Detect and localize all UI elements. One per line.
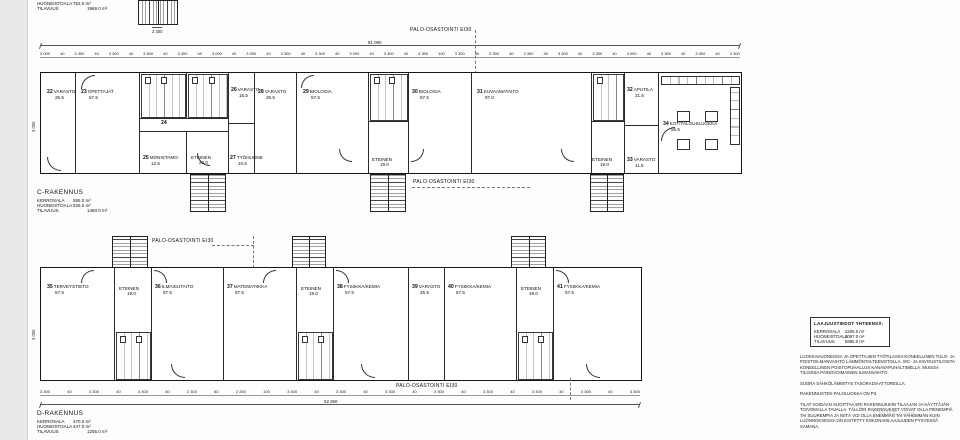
dimension-value: 40 xyxy=(163,51,167,56)
stat-row: TILAVUUS 1255.0 m³ xyxy=(37,429,107,434)
room-label-eteinen-3: ETEINEN 19.0 xyxy=(592,157,612,168)
dimension-value: 3 300 xyxy=(661,51,671,56)
wall xyxy=(186,131,187,173)
room-label-33: 33VARASTO 11.5 xyxy=(627,157,655,169)
wall xyxy=(553,268,554,380)
dimension-value: 3 300 xyxy=(455,51,465,56)
room-label-28: 28VARASTO 25.5 xyxy=(258,89,286,101)
dimension-value: 40 xyxy=(509,51,513,56)
dimension-value: 40 xyxy=(94,51,98,56)
wall xyxy=(223,268,224,380)
room-label-39: 39VARASTO 25.5 xyxy=(412,284,440,296)
wc-fixture xyxy=(374,77,380,84)
dimension-value: 100 xyxy=(263,389,270,394)
dimension-value: 40 xyxy=(67,389,71,394)
dimension-value: 3 300 xyxy=(489,51,499,56)
stat-label: TILAVUUS xyxy=(37,429,73,434)
stat-value: 1969.0 m³ xyxy=(87,6,107,11)
dimension-value: 40 xyxy=(404,51,408,56)
dimension-value: 3 300 xyxy=(532,389,542,394)
dimension-value: 40 xyxy=(681,51,685,56)
page-edge-strip xyxy=(0,0,28,440)
summary-title: LAAJUUSTIEDOT YHTEENSÄ: xyxy=(814,321,886,326)
door-arc xyxy=(47,157,61,171)
wc-fixture xyxy=(522,336,528,343)
room-label-30: 30BIOLOGIA 57.5 xyxy=(412,89,441,101)
building-c-stats: C-RAKENNUS KERROSALA 555.0 m² HUONEISTOA… xyxy=(37,190,107,213)
room-label-32: 32APUTILA 21.5 xyxy=(627,87,653,99)
dimension-value: 40 xyxy=(475,51,479,56)
total-dimension-c: 81 090 xyxy=(366,40,383,45)
door-arc xyxy=(81,75,95,89)
dimension-value: 3 300 xyxy=(281,51,291,56)
fire-compartment-label-c-top: PALO-OSASTOINTI EI30 xyxy=(410,27,472,33)
wc-fixture xyxy=(136,336,142,343)
fire-dashed-line-c-mid xyxy=(412,187,530,188)
dimension-value: 40 xyxy=(612,51,616,56)
door-arc xyxy=(81,270,94,283)
door-arc xyxy=(411,149,424,162)
total-dimension-d: 52 260 xyxy=(322,399,339,404)
kitchen-counter xyxy=(661,76,740,85)
summary-value: 5885.0 m³ xyxy=(845,339,864,344)
dimension-value: 40 xyxy=(116,389,120,394)
dimension-value: 3 300 xyxy=(418,51,428,56)
door-arc xyxy=(301,75,314,88)
dimension-value: 3 300 xyxy=(138,389,148,394)
dimension-value: 3 000 xyxy=(40,51,50,56)
stair-d-1 xyxy=(112,236,148,269)
totals-summary-box: LAAJUUSTIEDOT YHTEENSÄ: KERROSALA 2205.0… xyxy=(810,317,890,347)
stat-value: 1255.0 m³ xyxy=(87,429,107,434)
wall xyxy=(114,268,115,380)
building-c-title: C-RAKENNUS xyxy=(37,190,107,195)
room-label-eteinen-d2: ETEINEN 19.0 xyxy=(301,286,321,297)
wall xyxy=(151,268,152,380)
wc-fixture xyxy=(302,336,308,343)
room-label-31: 31KUVAAMATAITO 97.0 xyxy=(477,89,519,101)
dimension-value: 40 xyxy=(412,389,416,394)
fire-wall-dashed-line-d xyxy=(253,236,254,268)
floor-plan-sheet: HUONEISTOALA 752.0 m² TILAVUUS 1969.0 m³… xyxy=(0,0,960,440)
dimension-row-c: 3 000403 300403 300403 500403 300403 000… xyxy=(40,51,740,58)
dimension-value: 40 xyxy=(301,51,305,56)
fire-dashed-line-d-top xyxy=(212,245,254,246)
stat-label: TILAVUUS xyxy=(37,208,73,213)
dimension-value: 40 xyxy=(165,389,169,394)
wall xyxy=(368,121,408,122)
wc-fixture xyxy=(597,77,603,84)
dimension-value: 40 xyxy=(266,51,270,56)
door-arc xyxy=(556,270,569,283)
dimension-value: 3 300 xyxy=(40,389,50,394)
wall xyxy=(139,131,228,132)
room-label-40: 40FYSIIKKA/KEMIA 57.5 xyxy=(448,284,491,296)
room-label-35: 35TERVEYSTIETO 57.5 xyxy=(47,284,89,296)
dimension-value: 3 300 xyxy=(109,51,119,56)
table xyxy=(705,139,718,150)
side-dimension-d: 3 000 xyxy=(31,330,36,340)
stair-d-3 xyxy=(511,236,546,269)
dimension-value: 40 xyxy=(510,389,514,394)
building-d-plan: 35TERVEYSTIETO 57.5 ETEINEN 19.0 36ILMAI… xyxy=(40,267,642,381)
wc-fixture xyxy=(318,336,324,343)
wc-fixture xyxy=(192,77,198,84)
wall xyxy=(444,268,445,380)
dimension-value: 3 000 xyxy=(349,51,359,56)
fire-compartment-label-c-mid: PALO-OSASTOINTI EI30 xyxy=(413,179,475,185)
notes-text: LUOKKAHUONEISSA JA OPETTAJIEN TYÖTILASSA… xyxy=(800,354,956,434)
wall xyxy=(139,118,228,119)
room-label-eteinen-d3: ETEINEN 19.0 xyxy=(521,286,541,297)
dimension-value: 40 xyxy=(559,389,563,394)
building-d-title: D-RAKENNUS xyxy=(37,411,107,416)
dimension-value: 3 300 xyxy=(178,51,188,56)
wc-fixture xyxy=(161,77,167,84)
door-arc xyxy=(339,149,352,162)
dimension-value: 3 300 xyxy=(630,389,640,394)
total-dimension-line-c xyxy=(40,45,740,46)
dimension-value: 3 300 xyxy=(315,51,325,56)
dimension-row-d: 3 300403 300403 300402 300802 2501003 30… xyxy=(40,389,640,396)
room-label-24: 24 xyxy=(161,120,168,126)
door-arc xyxy=(586,364,600,378)
dimension-value: 40 xyxy=(129,51,133,56)
dimension-value: 2 250 xyxy=(236,389,246,394)
room-label-25: 25MONISTAMO 12.5 xyxy=(143,155,178,167)
wall xyxy=(591,121,624,122)
dimension-value: 40 xyxy=(314,389,318,394)
stair-d-2 xyxy=(292,236,326,269)
dimension-value: 3 300 xyxy=(384,51,394,56)
wall xyxy=(333,268,334,380)
dimension-value: 40 xyxy=(715,51,719,56)
room-label-eteinen-2: ETEINEN 19.0 xyxy=(372,157,392,168)
dimension-value: 40 xyxy=(60,51,64,56)
building-c-plan: 22VARASTO 25.5 23OPETTAJAT 57.5 24 25MON… xyxy=(40,72,742,174)
fire-compartment-label-d-top: PALO-OSASTOINTI EI30 xyxy=(152,238,214,244)
building-b-stats-partial: HUONEISTOALA 752.0 m² TILAVUUS 1969.0 m³ xyxy=(37,1,107,11)
building-d-stats: D-RAKENNUS KERROSALA 470.0 m² HUONEISTOA… xyxy=(37,411,107,434)
table xyxy=(677,139,690,150)
wall xyxy=(296,268,297,380)
wc-fixture xyxy=(120,336,126,343)
door-arc xyxy=(154,270,167,283)
wc-fixture xyxy=(145,77,151,84)
dimension-value: 40 xyxy=(647,51,651,56)
dimension-value: 3 300 xyxy=(581,389,591,394)
stair-c-2 xyxy=(370,174,406,212)
room-label-34: 34KOTITALOUSLUOKKA 55.5 xyxy=(663,121,717,133)
kitchen-counter xyxy=(730,87,740,145)
summary-row: TILAVUUS 5885.0 m³ xyxy=(814,339,886,344)
dimension-value: 40 xyxy=(335,51,339,56)
dimension-value: 40 xyxy=(232,51,236,56)
room-label-22: 22VARASTO 25.5 xyxy=(47,89,75,101)
note-paragraph: RAKENNUSTEN PALOLUOKKA ON P3. xyxy=(800,391,956,396)
stat-row: TILAVUUS 1480.0 m³ xyxy=(37,208,107,213)
dimension-value: 3 300 xyxy=(74,51,84,56)
dimension-value: 3 300 xyxy=(695,51,705,56)
dimension-value: 3 300 xyxy=(558,51,568,56)
dimension-value: 3 300 xyxy=(483,389,493,394)
dimension-value: 80 xyxy=(214,389,218,394)
dimension-value: 3 300 xyxy=(434,389,444,394)
dimension-value: 100 xyxy=(438,51,445,56)
door-arc xyxy=(361,364,375,378)
room-label-27: 27TYÖHUONE 10.5 xyxy=(230,155,263,167)
door-arc xyxy=(336,270,349,283)
wall xyxy=(139,73,140,173)
wall xyxy=(75,73,76,173)
wall xyxy=(296,73,297,173)
wall xyxy=(658,73,659,173)
room-label-37: 37MATEMATIIKKA 57.5 xyxy=(227,284,267,296)
room-label-29: 29BIOLOGIA 57.5 xyxy=(303,89,332,101)
wc-fixture xyxy=(209,77,215,84)
dimension-value: 40 xyxy=(363,389,367,394)
side-dimension-c: 3 000 xyxy=(31,122,36,132)
dimension-value: 3 300 xyxy=(287,389,297,394)
room-label-eteinen-d1: ETEINEN 19.0 xyxy=(119,286,139,297)
wall xyxy=(624,125,658,126)
dimension-value: 3 300 xyxy=(336,389,346,394)
door-arc xyxy=(171,364,185,378)
door-arc xyxy=(263,270,276,283)
wall xyxy=(408,268,409,380)
room-label-38: 38FYSIIKKA/KEMIA 57.5 xyxy=(337,284,380,296)
door-arc xyxy=(561,149,574,162)
dimension-value: 40 xyxy=(197,51,201,56)
summary-label: TILAVUUS xyxy=(814,339,845,344)
dimension-value: 40 xyxy=(578,51,582,56)
dimension-value: 3 000 xyxy=(246,51,256,56)
wall xyxy=(368,73,369,173)
dimension-value: 3 000 xyxy=(627,51,637,56)
stair-c-3 xyxy=(590,174,624,212)
stair-c-1 xyxy=(190,174,226,212)
note-paragraph: SUORA SÄHKÖLÄMMITYS TASORADIAATTOREILLA. xyxy=(800,381,956,386)
dimension-value: 40 xyxy=(608,389,612,394)
stair-dimension: 2 300 xyxy=(152,27,162,34)
wall xyxy=(471,73,472,173)
wall xyxy=(624,73,625,173)
dimension-value: 3 300 xyxy=(730,51,740,56)
stat-row: TILAVUUS 1969.0 m³ xyxy=(37,6,107,11)
stat-label: TILAVUUS xyxy=(37,6,73,11)
wall xyxy=(186,73,187,118)
wc-fixture xyxy=(389,77,395,84)
dimension-value: 2 300 xyxy=(187,389,197,394)
stock-watermark: 123RF.com xyxy=(872,409,915,418)
wc-fixture xyxy=(538,336,544,343)
note-paragraph: LUOKKAHUONEISSA JA OPETTAJIEN TYÖTILASSA… xyxy=(800,354,956,376)
room-label-26: 26VARASTO 15.5 xyxy=(231,87,259,99)
dimension-value: 3 300 xyxy=(89,389,99,394)
room-label-41: 41FYSIIKKA/KEMIA 57.5 xyxy=(557,284,600,296)
stat-value: 1480.0 m³ xyxy=(87,208,107,213)
dimension-value: 3 300 xyxy=(385,389,395,394)
wall xyxy=(408,73,409,173)
stair-detail-top xyxy=(138,0,178,25)
dimension-value: 40 xyxy=(369,51,373,56)
room-label-36: 36ILMAISUTAITO 57.5 xyxy=(155,284,193,296)
room-label-eteinen-1: ETEINEN 20.0 xyxy=(191,155,211,166)
dimension-value: 3 000 xyxy=(212,51,222,56)
dimension-value: 3 500 xyxy=(143,51,153,56)
dimension-value: 40 xyxy=(543,51,547,56)
dimension-value: 3 300 xyxy=(592,51,602,56)
dimension-value: 3 300 xyxy=(523,51,533,56)
dimension-value: 40 xyxy=(461,389,465,394)
room-label-23: 23OPETTAJAT 57.5 xyxy=(81,89,114,101)
wall xyxy=(516,268,517,380)
wall xyxy=(228,123,254,124)
total-dimension-line-d xyxy=(40,404,640,405)
